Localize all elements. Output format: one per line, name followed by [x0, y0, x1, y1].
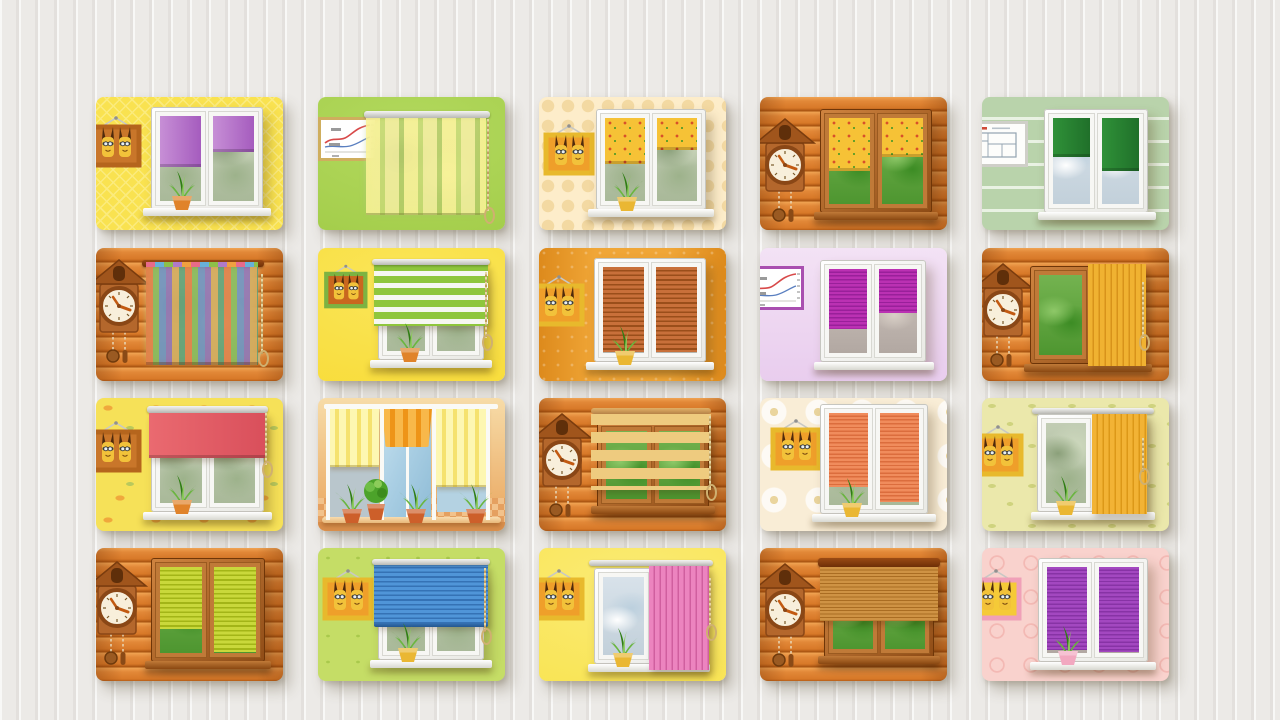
blind-card-terrace-awnings[interactable]	[318, 398, 505, 531]
blind-zebra	[374, 264, 488, 326]
window-sill	[1038, 212, 1156, 220]
window	[1044, 109, 1148, 213]
blind-card-wooden-zebra-blind[interactable]	[539, 398, 726, 531]
blind-roller-flower	[829, 118, 870, 171]
blind-card-flower-roller-blinds-wood[interactable]	[760, 97, 947, 230]
blind-roller-flower	[882, 118, 923, 157]
blind-card-salmon-pleated-blinds[interactable]	[760, 398, 947, 531]
blind-card-purple-roller-blinds[interactable]	[96, 97, 283, 230]
window-pane	[1035, 271, 1086, 359]
blind-card-amber-vertical-blinds[interactable]	[982, 398, 1169, 531]
potted-plant	[832, 476, 872, 518]
window-pane	[878, 114, 927, 208]
terrace-beam	[324, 404, 498, 409]
picture-frame	[96, 418, 144, 474]
blind-roller	[213, 116, 254, 152]
window-pane	[1098, 114, 1143, 208]
cuckoo-clock	[96, 258, 150, 366]
blind-roller	[1102, 118, 1139, 171]
potted-plant	[356, 476, 396, 522]
blind-chain	[261, 274, 263, 354]
blind-card-yellow-vertical-blinds-wood[interactable]	[982, 248, 1169, 381]
blind-cassette	[372, 559, 490, 565]
potted-plant	[162, 169, 202, 211]
blind-chain	[487, 119, 489, 211]
blind-chain	[1142, 438, 1144, 472]
window-pane	[652, 263, 701, 357]
blind-roller-flower	[605, 118, 645, 164]
window	[820, 260, 926, 362]
potted-plant	[605, 324, 645, 366]
wall-chart	[760, 266, 804, 310]
window-pane	[209, 112, 258, 205]
blind-chain	[485, 272, 487, 338]
illustration-canvas	[0, 0, 1280, 720]
window-pane	[825, 265, 871, 357]
blind-pleated	[1099, 567, 1139, 652]
potted-plant	[603, 626, 643, 668]
cuckoo-clock	[982, 262, 1034, 370]
blind-woodzebra	[591, 414, 711, 490]
blind-card-multicolor-striped-curtain[interactable]	[96, 248, 283, 381]
window-sill	[814, 212, 938, 220]
blind-pleated	[880, 413, 919, 502]
blind-rail	[818, 558, 940, 567]
blind-card-green-zebra-blind[interactable]	[318, 248, 505, 381]
blind-roller	[1053, 118, 1090, 157]
blind-cassette	[372, 259, 490, 265]
blind-chain	[1142, 282, 1144, 338]
blind-card-bamboo-roll-up-blind[interactable]	[760, 548, 947, 681]
blind-pleated	[879, 269, 917, 313]
blind-chain	[709, 578, 711, 628]
window-sill	[370, 360, 492, 368]
blind-card-purple-pleated-blinds[interactable]	[982, 548, 1169, 681]
window-pane	[1095, 563, 1143, 657]
blind-rail	[364, 111, 490, 118]
blind-chain	[709, 416, 711, 488]
window-sill	[591, 506, 715, 514]
picture-frame	[322, 262, 370, 310]
potted-plant	[1046, 474, 1086, 516]
cuckoo-clock	[760, 562, 816, 670]
blind-pleated	[829, 269, 867, 329]
blind-vertical	[649, 566, 709, 670]
blind-card-magenta-pleated-blinds[interactable]	[760, 248, 947, 381]
window-sill	[814, 362, 934, 370]
window-glass	[1039, 275, 1082, 355]
blind-card-red-roller-blind[interactable]	[96, 398, 283, 531]
terrace-post	[326, 404, 330, 520]
window-pane	[825, 114, 874, 208]
picture-frame	[320, 566, 376, 622]
potted-plant	[1048, 624, 1088, 666]
window-pane	[653, 114, 701, 205]
picture-frame	[982, 566, 1024, 622]
cuckoo-clock	[539, 412, 593, 520]
window-pane	[876, 409, 923, 509]
blind-roller	[160, 116, 201, 167]
blind-card-green-roller-blinds[interactable]	[982, 97, 1169, 230]
blueprint-frame	[982, 121, 1028, 167]
blind-bamboo	[820, 567, 938, 621]
picture-frame	[541, 121, 597, 177]
awning-right	[435, 408, 486, 487]
blind-card-lime-venetian-blinds-wood[interactable]	[96, 548, 283, 681]
picture-frame	[539, 566, 587, 622]
blind-rail	[147, 406, 268, 413]
blind-card-pink-vertical-blinds[interactable]	[539, 548, 726, 681]
blind-roller	[149, 413, 266, 458]
picture-frame	[768, 416, 824, 472]
potted-plant	[456, 482, 496, 528]
window-pane	[875, 265, 921, 357]
potted-plant	[388, 621, 428, 663]
blind-card-panel-curtain[interactable]	[318, 97, 505, 230]
window-sill	[818, 656, 940, 664]
blind-venetian	[160, 567, 202, 629]
window-pane	[156, 563, 206, 657]
picture-frame	[539, 272, 587, 328]
cuckoo-clock	[96, 560, 148, 668]
panel-curtain	[366, 118, 486, 215]
window-sill	[812, 514, 936, 522]
potted-plant	[607, 170, 647, 212]
window-pane	[210, 563, 260, 657]
blind-card-flower-roller-blinds[interactable]	[539, 97, 726, 230]
blind-vertical	[1088, 264, 1146, 366]
cuckoo-clock	[760, 117, 816, 225]
potted-plant	[396, 482, 436, 528]
blind-card-blue-venetian-blind[interactable]	[318, 548, 505, 681]
potted-plant	[162, 473, 202, 515]
blind-venetian	[656, 267, 697, 352]
blind-vertical	[1092, 414, 1147, 514]
blind-roller-flower	[657, 118, 697, 150]
window-sill	[145, 661, 271, 669]
awning-left	[328, 408, 379, 467]
window	[820, 109, 932, 213]
window-pane	[1049, 114, 1094, 208]
blind-venetian	[374, 564, 488, 626]
window	[151, 558, 265, 662]
blind-venetian	[214, 567, 256, 652]
blind-chain	[265, 413, 267, 465]
blind-chain	[484, 568, 486, 632]
blind-card-wooden-venetian-blinds[interactable]	[539, 248, 726, 381]
picture-frame	[982, 422, 1026, 478]
awning-center	[382, 408, 432, 447]
striped-curtain	[146, 267, 258, 365]
potted-plant	[390, 321, 430, 363]
picture-frame	[96, 113, 144, 169]
